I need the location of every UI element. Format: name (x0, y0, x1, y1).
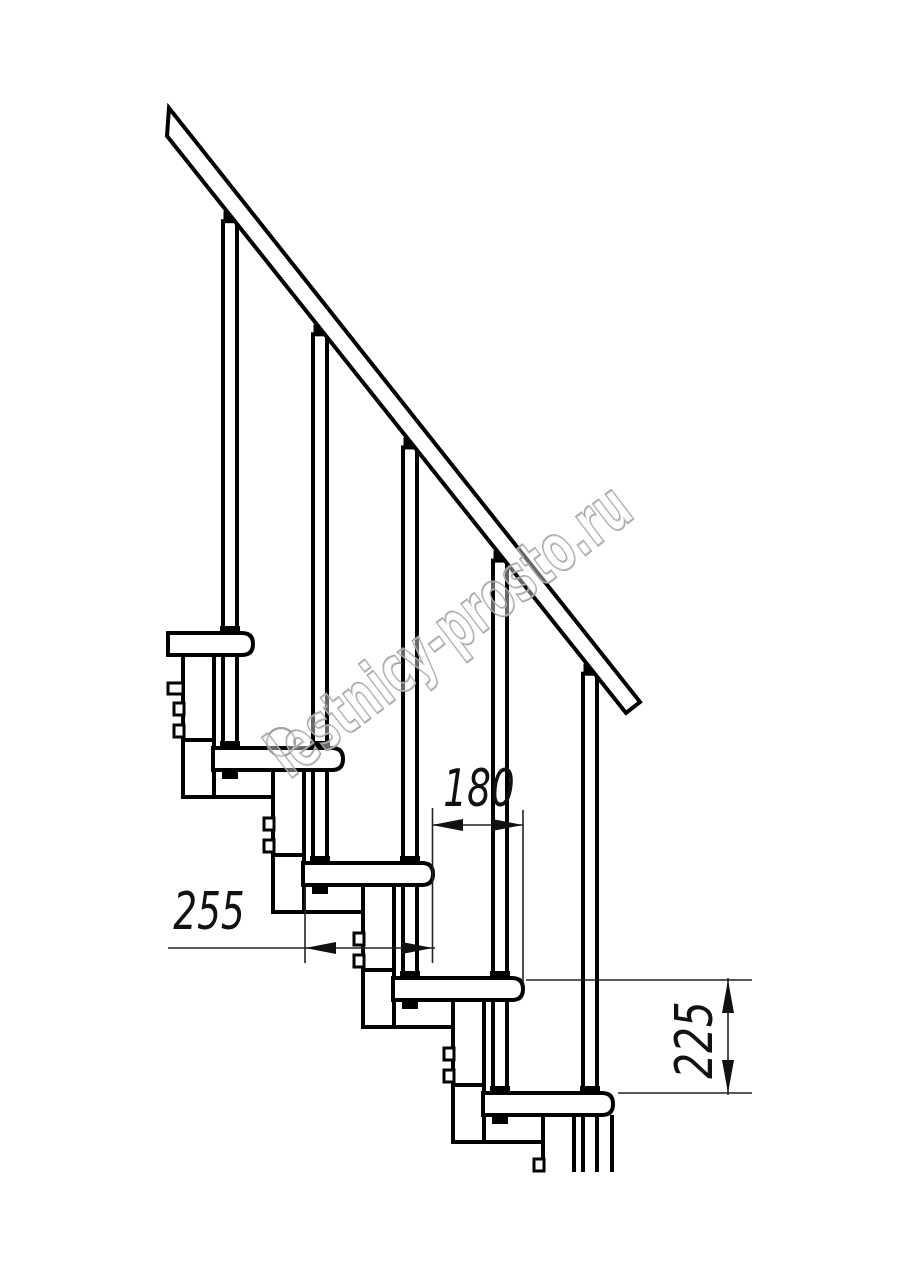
bracket-bolt (354, 933, 364, 945)
bracket-bolt (264, 840, 274, 852)
bracket-column-4 (453, 996, 484, 1142)
sub-baluster-3 (403, 884, 417, 980)
bracket-bolt (174, 703, 184, 715)
sub-baluster-2 (313, 769, 327, 865)
dimension-label-step-run: 180 (443, 758, 514, 819)
tread-1 (168, 633, 253, 655)
baluster-base-flange (580, 1086, 600, 1093)
baluster-5 (583, 674, 597, 1093)
bracket-bolt (354, 955, 364, 967)
tread-3 (303, 863, 433, 885)
drawing-page: 255 180 225 lestnicy-prosto.ru (0, 0, 914, 1280)
arrowhead (305, 942, 336, 954)
bracket-bolt (444, 1048, 454, 1060)
dimension-label-tread-depth: 255 (173, 881, 244, 942)
bracket-bolt (174, 725, 184, 737)
tread-5 (483, 1093, 613, 1115)
arrowhead (432, 819, 463, 831)
bracket-bolt (534, 1159, 544, 1171)
sub-baluster-1 (223, 654, 237, 750)
dimension-label-step-rise: 225 (664, 1001, 724, 1078)
baluster-base-flange (220, 626, 240, 633)
staircase-technical-drawing: 255 180 225 lestnicy-prosto.ru (0, 0, 914, 1280)
baluster-1 (223, 221, 237, 633)
baluster-base-flange (490, 971, 510, 978)
bracket-column-1 (183, 651, 214, 797)
bracket-bolt (264, 818, 274, 830)
baluster-base-flange (400, 856, 420, 863)
bracket-bolt (444, 1070, 454, 1082)
sub-baluster-4 (493, 999, 507, 1095)
bracket-column-3 (363, 881, 394, 1027)
tread-4 (393, 978, 523, 1000)
top-mount-tab (168, 683, 183, 694)
